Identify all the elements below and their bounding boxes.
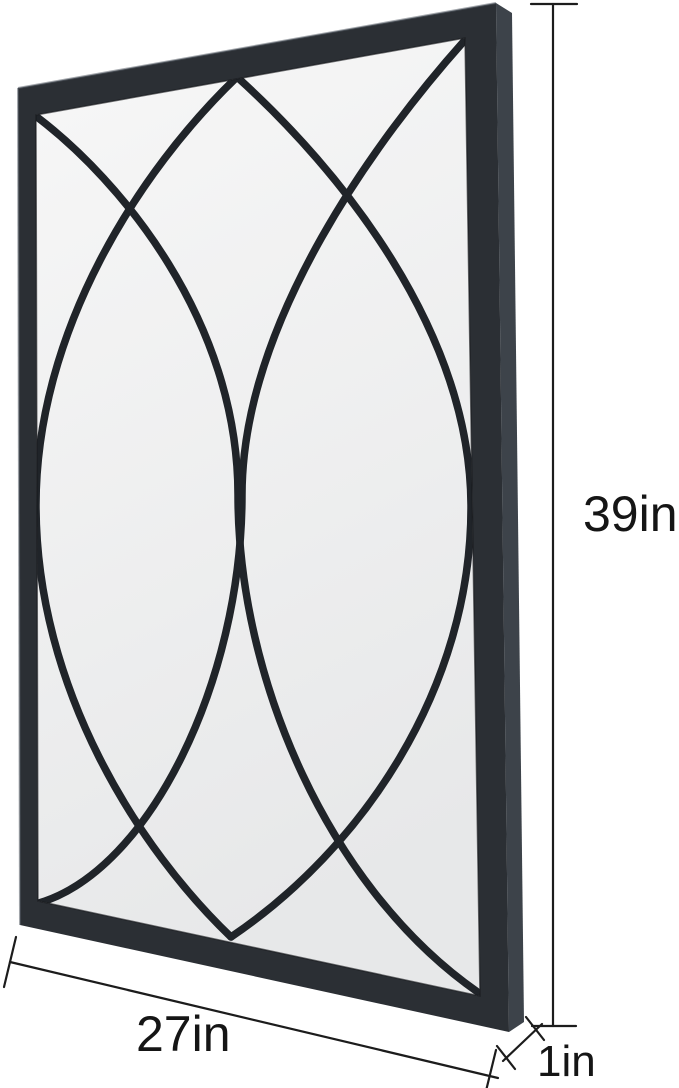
height-dimension-line: [531, 4, 577, 1026]
mirror-diagram-canvas: 39in 27in 1in: [0, 0, 679, 1088]
depth-dimension-label: 1in: [537, 1037, 596, 1086]
product-dimension-diagram: 39in 27in 1in: [0, 0, 679, 1088]
width-dimension-label: 27in: [136, 1006, 231, 1062]
height-dimension-label: 39in: [583, 486, 678, 542]
